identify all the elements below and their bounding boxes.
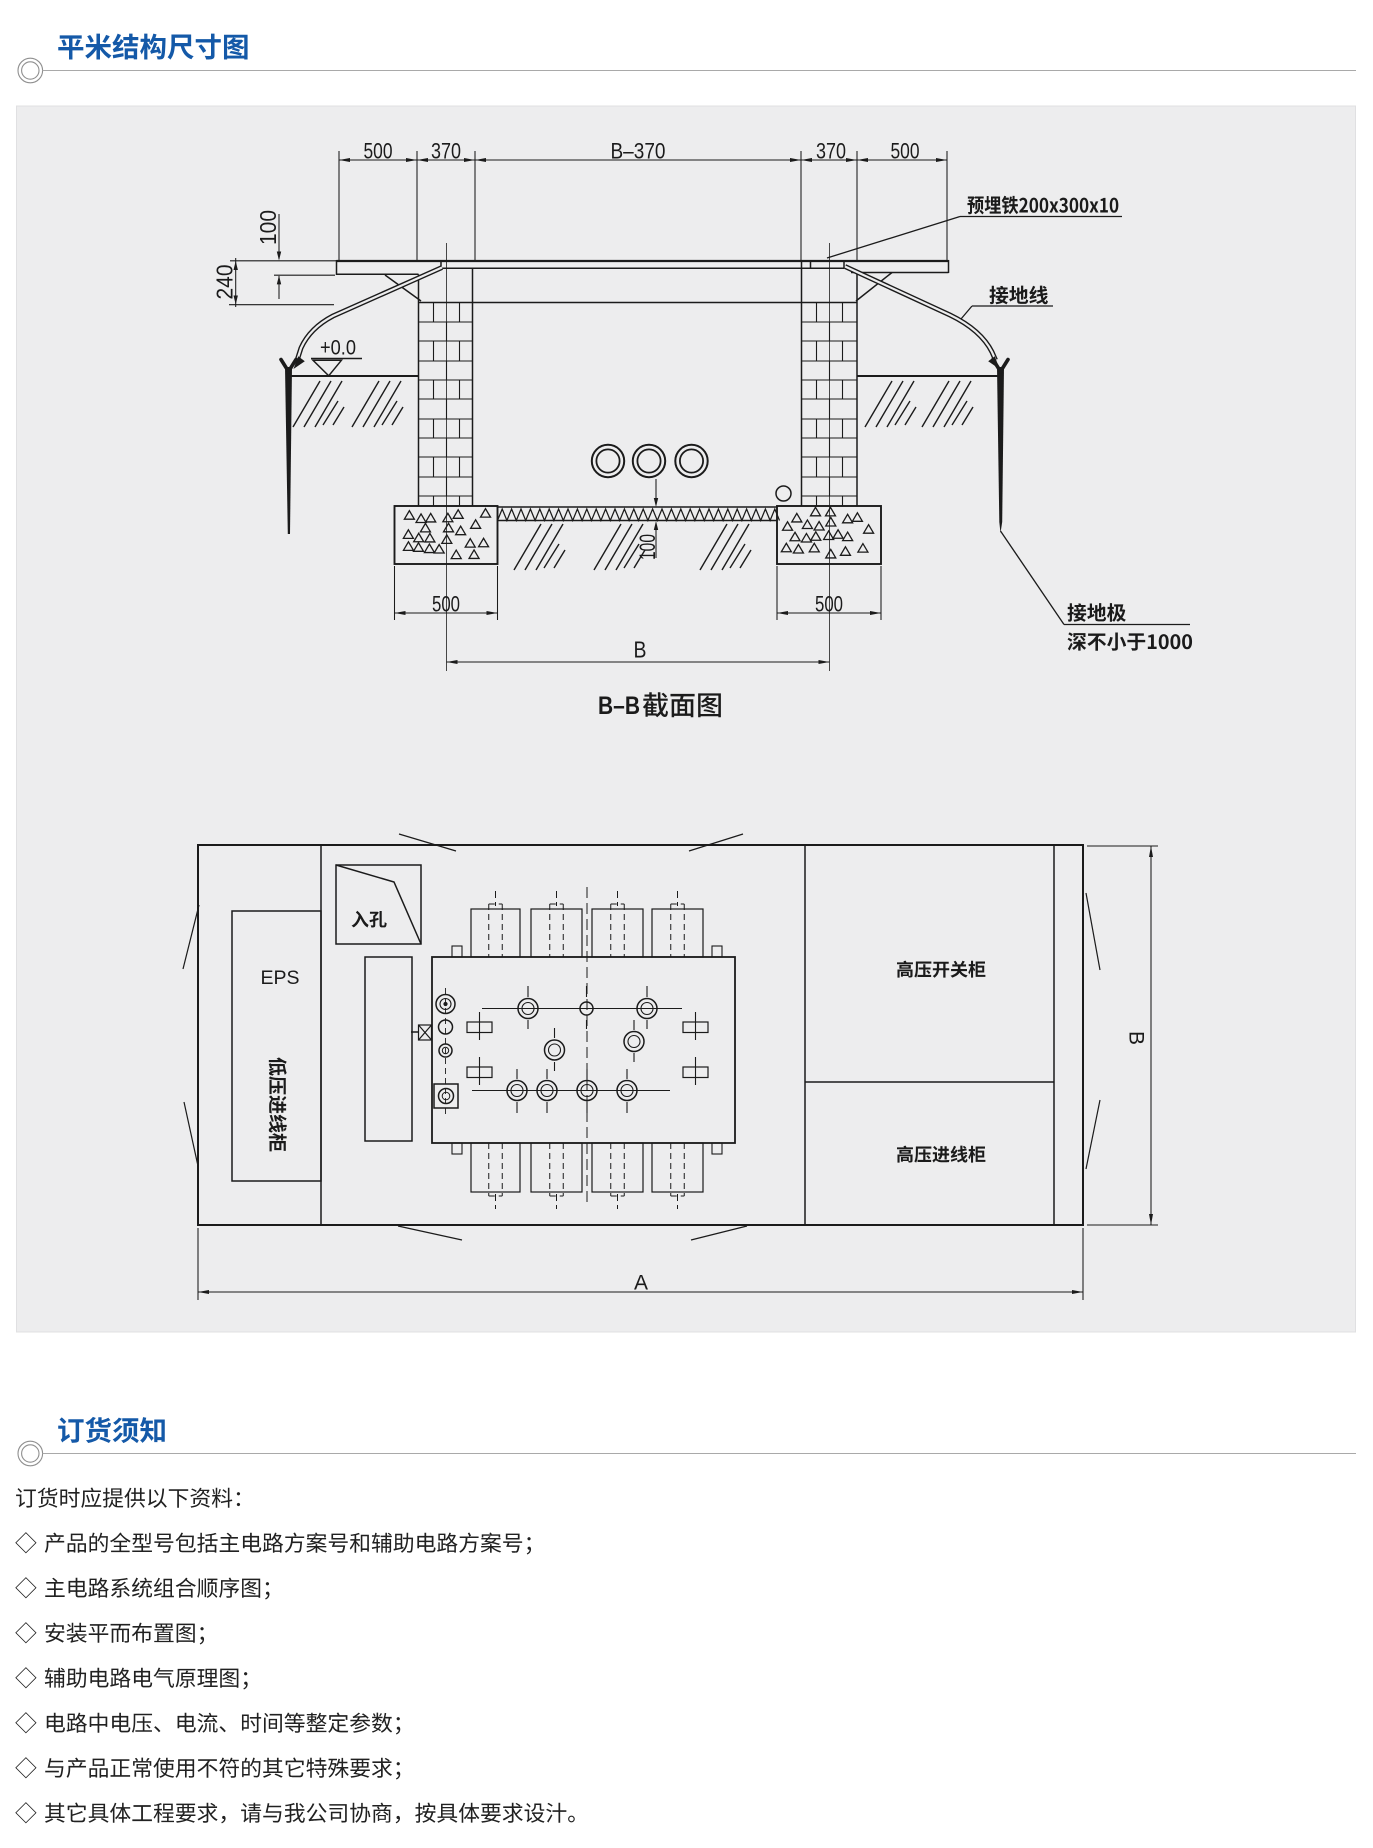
svg-text:B: B	[634, 637, 647, 663]
svg-text:370: 370	[431, 139, 461, 164]
svg-text:370: 370	[816, 139, 846, 164]
svg-text:B–370: B–370	[611, 139, 666, 164]
svg-text:B: B	[1125, 1031, 1148, 1045]
svg-text:EPS: EPS	[260, 967, 299, 989]
svg-text:500: 500	[432, 592, 460, 617]
svg-text:100: 100	[635, 534, 660, 560]
svg-text:A: A	[634, 1272, 648, 1295]
svg-text:500: 500	[815, 592, 843, 617]
svg-text:500: 500	[891, 139, 920, 164]
svg-text:240: 240	[212, 265, 238, 300]
svg-text:500: 500	[364, 139, 393, 164]
svg-text:+0.0: +0.0	[320, 337, 356, 360]
svg-text:100: 100	[255, 210, 281, 245]
svg-text:B–B: B–B	[598, 692, 640, 720]
